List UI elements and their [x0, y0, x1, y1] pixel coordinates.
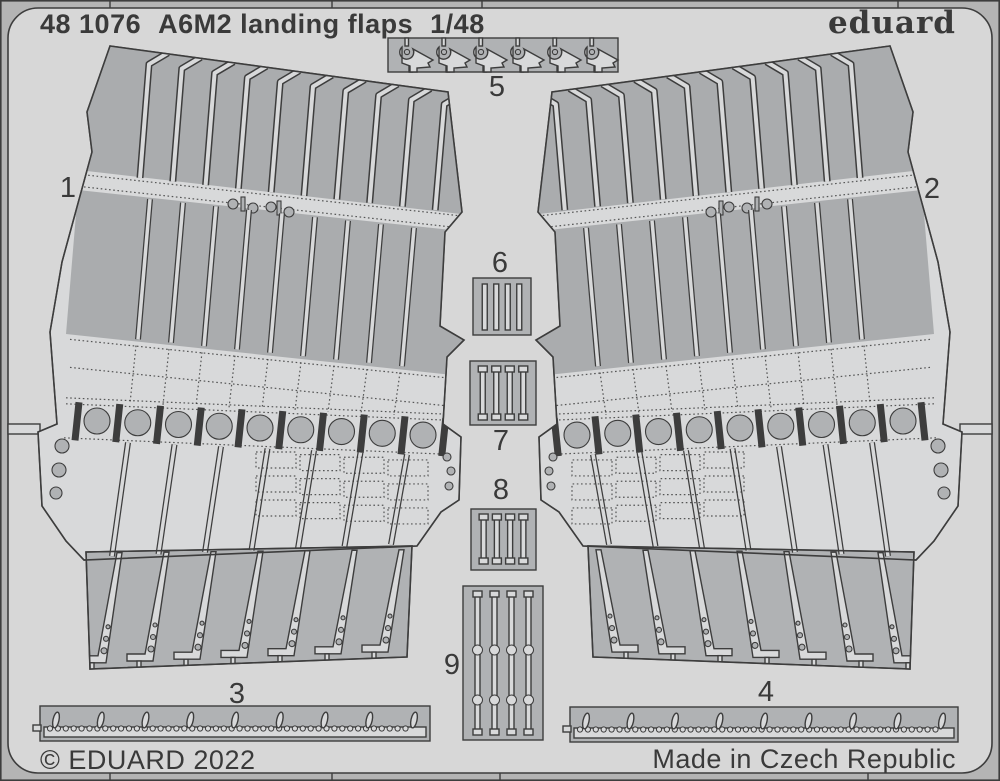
part-label-1: 1 — [60, 172, 76, 204]
part-3-hinge-strip — [33, 706, 430, 741]
sheet-title: 48 1076 A6M2 landing flaps 1/48 — [40, 9, 485, 40]
part-label-8: 8 — [493, 474, 509, 506]
catalog-number: 48 1076 — [40, 9, 141, 40]
fret-drawing: 1 2 3 4 5 6 7 8 9 — [0, 0, 1000, 781]
copyright-text: © EDUARD 2022 — [40, 745, 255, 776]
part-6-strips — [473, 278, 531, 335]
part-9-strips — [463, 586, 543, 740]
part-5-hinge-brackets — [388, 38, 618, 72]
part-label-3: 3 — [229, 678, 245, 710]
part-7-strips — [470, 361, 536, 425]
part-label-7: 7 — [493, 425, 509, 457]
part-label-9: 9 — [444, 649, 460, 681]
part-8-strips — [471, 509, 536, 570]
part-4-hinge-strip — [563, 707, 958, 742]
part-label-4: 4 — [758, 676, 774, 708]
eduard-brand-logo: eduard — [828, 5, 956, 41]
flap-part-2 — [530, 38, 962, 675]
part-label-2: 2 — [924, 173, 940, 205]
photo-etch-fret-sheet: 1 2 3 4 5 6 7 8 9 48 1076 A6M2 landing f… — [0, 0, 1000, 781]
part-label-6: 6 — [492, 247, 508, 279]
made-in-text: Made in Czech Republic — [652, 744, 956, 775]
flap-part-1 — [38, 38, 470, 675]
part-label-5: 5 — [489, 71, 505, 103]
product-title: A6M2 landing flaps — [158, 9, 413, 40]
scale-label: 1/48 — [430, 9, 485, 40]
